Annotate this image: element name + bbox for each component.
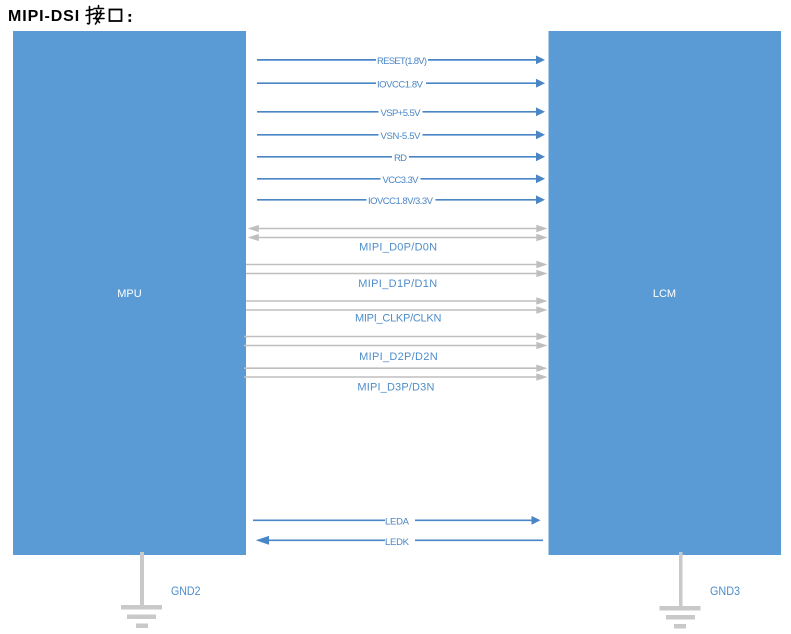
svg-text:RD: RD [394, 153, 407, 164]
svg-text:MIPI_D3P/D3N: MIPI_D3P/D3N [357, 382, 434, 394]
svg-text:VCC3.3V: VCC3.3V [383, 175, 420, 186]
svg-text:GND3: GND3 [710, 584, 740, 598]
svg-text:IOVCC1.8V: IOVCC1.8V [377, 79, 424, 90]
svg-text:IOVCC1.8V/3.3V: IOVCC1.8V/3.3V [368, 196, 434, 207]
svg-text:MIPI_D2P/D2N: MIPI_D2P/D2N [359, 351, 438, 363]
svg-text:MIPI_D1P/D1N: MIPI_D1P/D1N [358, 278, 437, 290]
svg-text:MIPI-DSI: MIPI-DSI [8, 8, 80, 25]
svg-text:GND2: GND2 [171, 584, 201, 598]
svg-text:VSN-5.5V: VSN-5.5V [381, 131, 422, 142]
svg-text:LEDK: LEDK [385, 537, 410, 548]
svg-text:MIPI_CLKP/CLKN: MIPI_CLKP/CLKN [355, 312, 442, 324]
svg-text:LCM: LCM [653, 288, 676, 300]
svg-text:VSP+5.5V: VSP+5.5V [381, 108, 422, 119]
svg-text:RESET(1.8V): RESET(1.8V) [377, 56, 427, 67]
svg-text:LEDA: LEDA [385, 517, 410, 528]
svg-text:MIPI_D0P/D0N: MIPI_D0P/D0N [359, 242, 437, 254]
svg-text:MPU: MPU [117, 288, 142, 300]
